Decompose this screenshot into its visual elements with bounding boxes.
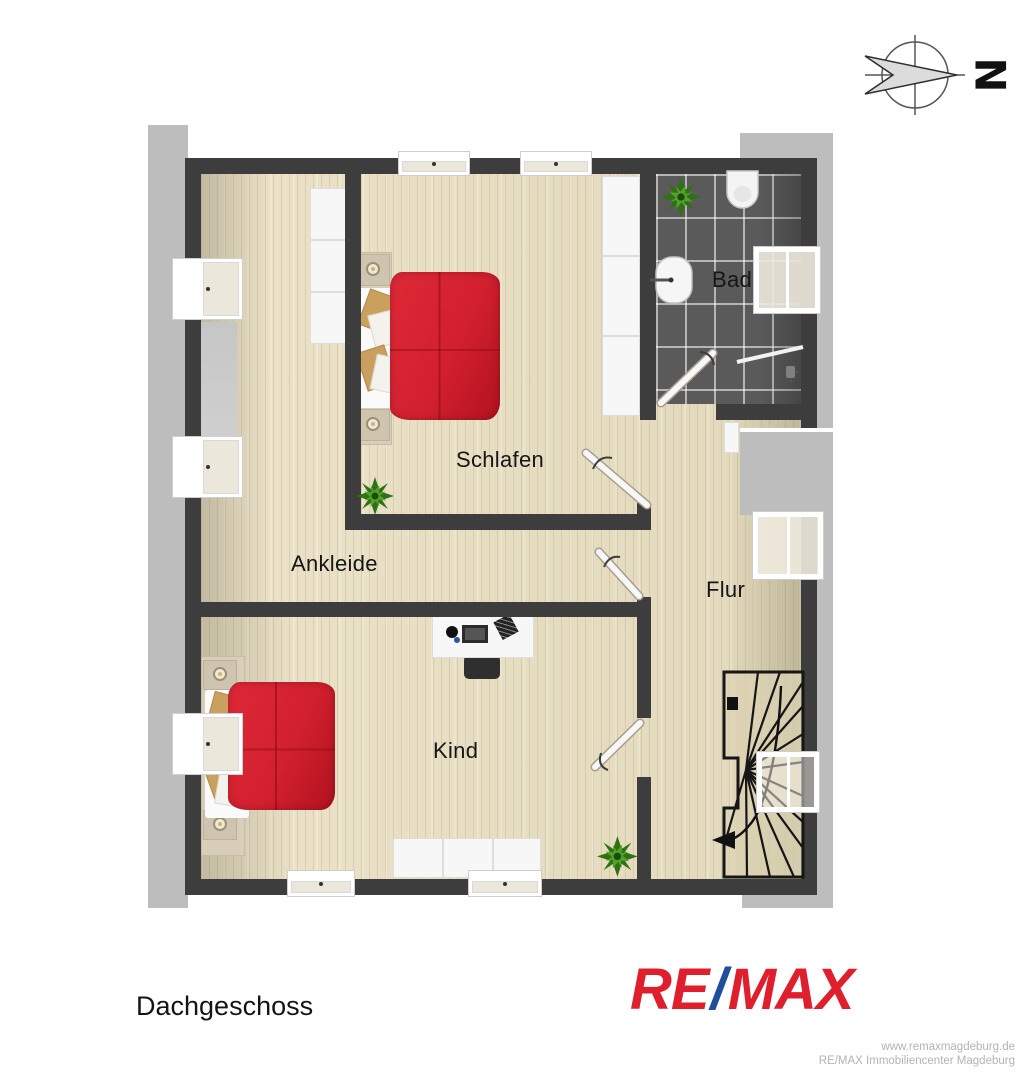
wall-top <box>185 158 817 174</box>
room-label-ankleide: Ankleide <box>291 551 378 577</box>
bed-duvet <box>228 682 335 810</box>
wardrobe-schlafen <box>602 176 640 416</box>
room-label-flur: Flur <box>706 577 745 603</box>
footnote: www.remaxmagdeburg.de RE/MAX Immobilienc… <box>819 1041 1015 1068</box>
room-label-schlafen: Schlafen <box>456 447 544 473</box>
knee-wall-patch <box>201 322 237 436</box>
bed-duvet <box>390 272 500 420</box>
room-label-kind: Kind <box>433 738 478 764</box>
window <box>468 870 542 897</box>
bed-schlafen <box>355 252 501 445</box>
wall-ankleide-kind <box>201 602 637 617</box>
floor-title: Dachgeschoss <box>136 991 313 1022</box>
compass-north-label: N <box>966 57 1015 92</box>
lamp-icon <box>213 667 227 681</box>
eaves-strip-left <box>148 125 188 908</box>
roof-recess-right <box>740 428 833 515</box>
remax-logo: RE/MAX <box>630 956 854 1023</box>
lamp-icon <box>366 262 380 276</box>
desk-lamp-dot <box>454 637 460 643</box>
wall-stub-schlafen-door <box>637 503 651 519</box>
window <box>172 436 243 498</box>
window <box>398 151 470 176</box>
wall-flur-lower <box>637 777 651 879</box>
logo-slash: / <box>709 957 728 1022</box>
wall-flur-upper <box>637 597 651 718</box>
desk-chair <box>464 655 500 679</box>
room-label-bad: Bad <box>712 267 752 293</box>
window <box>172 258 243 320</box>
lamp-icon <box>366 417 380 431</box>
compass-rose: N <box>845 25 1030 130</box>
wall-schlafen-bottom <box>345 514 651 530</box>
logo-re: RE <box>630 957 709 1022</box>
floor-plan-page: Schlafen Ankleide Bad Flur Kind N Dachge… <box>0 0 1031 1080</box>
wall-bad-bottom <box>716 404 801 420</box>
window-dormer-bad <box>754 247 820 313</box>
footnote-website: www.remaxmagdeburg.de <box>819 1041 1015 1055</box>
radiator-flur <box>724 422 739 453</box>
window-dormer-flur <box>753 512 823 579</box>
window-dormer-stairs <box>757 752 819 812</box>
window <box>287 870 355 897</box>
window <box>172 713 243 775</box>
wardrobe-ankleide <box>310 188 347 344</box>
footnote-office: RE/MAX Immobiliencenter Magdeburg <box>819 1055 1015 1069</box>
wall-schlafen-left <box>345 174 361 530</box>
window <box>520 151 592 176</box>
wall-bad-left <box>640 174 656 420</box>
logo-max: MAX <box>728 957 854 1022</box>
desk-laptop <box>462 625 488 643</box>
lamp-icon <box>213 817 227 831</box>
